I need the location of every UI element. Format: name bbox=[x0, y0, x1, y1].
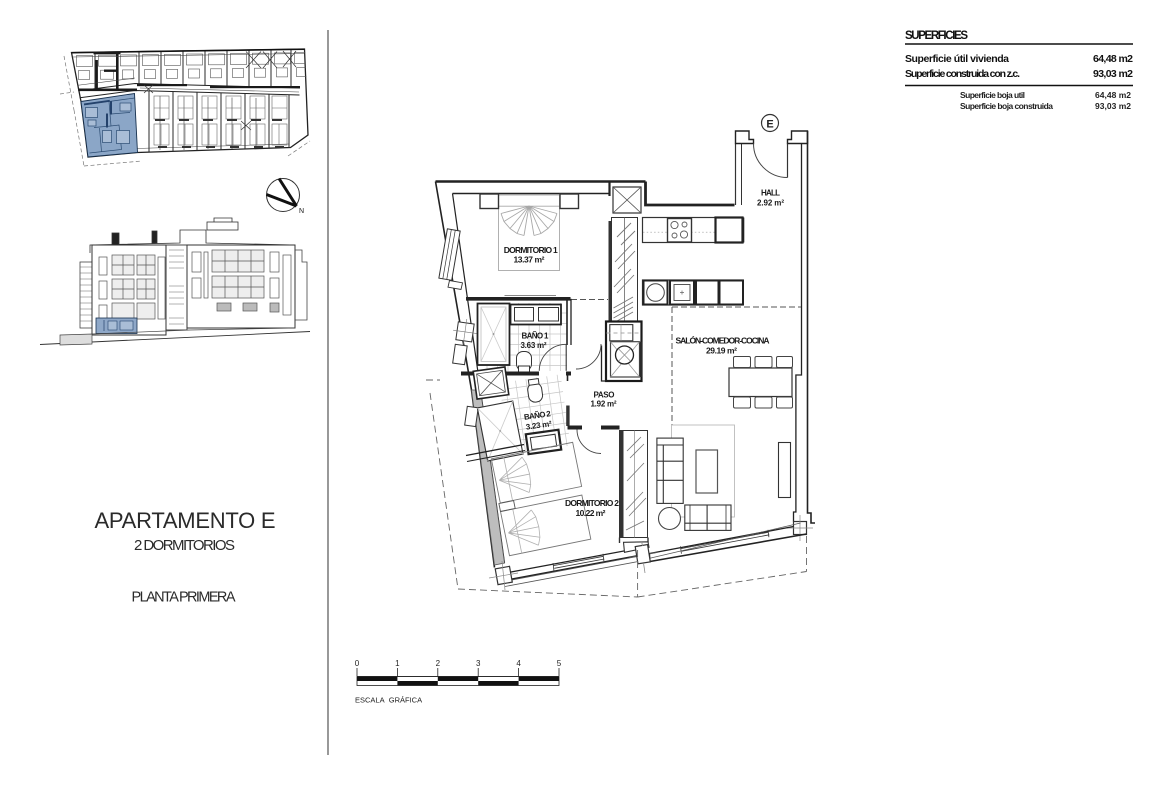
svg-text:13.37 m²: 13.37 m² bbox=[514, 255, 545, 265]
svg-text:5: 5 bbox=[557, 659, 562, 668]
svg-text:3: 3 bbox=[476, 659, 481, 668]
svg-text:0: 0 bbox=[355, 659, 360, 668]
svg-text:Superficie útil vivienda: Superficie útil vivienda bbox=[905, 53, 1009, 65]
svg-text:4: 4 bbox=[516, 659, 521, 668]
svg-text:29.19 m²: 29.19 m² bbox=[706, 346, 737, 356]
svg-text:SALÓN-COMEDOR-COCINA: SALÓN-COMEDOR-COCINA bbox=[676, 335, 770, 346]
svg-text:ESCALA GRÁFICA: ESCALA GRÁFICA bbox=[355, 696, 422, 705]
svg-text:3.63 m²: 3.63 m² bbox=[521, 341, 547, 350]
svg-text:Superficie construida con z.c.: Superficie construida con z.c. bbox=[905, 68, 1020, 80]
svg-text:2: 2 bbox=[436, 659, 441, 668]
svg-text:DORMITORIO 2: DORMITORIO 2 bbox=[565, 498, 619, 508]
svg-text:2 DORMITORIOS: 2 DORMITORIOS bbox=[134, 537, 235, 554]
svg-text:93,03 m2: 93,03 m2 bbox=[1093, 68, 1133, 80]
svg-text:10.22 m²: 10.22 m² bbox=[576, 508, 606, 518]
svg-text:HALL: HALL bbox=[761, 189, 780, 198]
svg-text:Superficie boja util: Superficie boja util bbox=[960, 90, 1025, 100]
svg-text:PASO: PASO bbox=[594, 391, 615, 400]
svg-text:64,48 m2: 64,48 m2 bbox=[1095, 90, 1131, 100]
svg-text:BAÑO 1: BAÑO 1 bbox=[522, 332, 550, 341]
svg-text:2.92 m²: 2.92 m² bbox=[757, 199, 784, 208]
svg-text:PLANTA PRIMERA: PLANTA PRIMERA bbox=[132, 590, 236, 606]
svg-text:SUPERFICIES: SUPERFICIES bbox=[905, 30, 968, 42]
svg-text:Superficie boja construida: Superficie boja construida bbox=[960, 101, 1053, 111]
svg-text:1.92 m²: 1.92 m² bbox=[591, 400, 617, 409]
svg-text:APARTAMENTO E: APARTAMENTO E bbox=[95, 508, 276, 533]
svg-text:1: 1 bbox=[395, 659, 400, 668]
svg-text:93,03 m2: 93,03 m2 bbox=[1095, 101, 1131, 111]
svg-text:E: E bbox=[766, 119, 773, 131]
svg-text:DORMITORIO 1: DORMITORIO 1 bbox=[504, 245, 558, 255]
svg-text:64,48 m2: 64,48 m2 bbox=[1093, 53, 1133, 65]
svg-text:N: N bbox=[299, 208, 304, 215]
